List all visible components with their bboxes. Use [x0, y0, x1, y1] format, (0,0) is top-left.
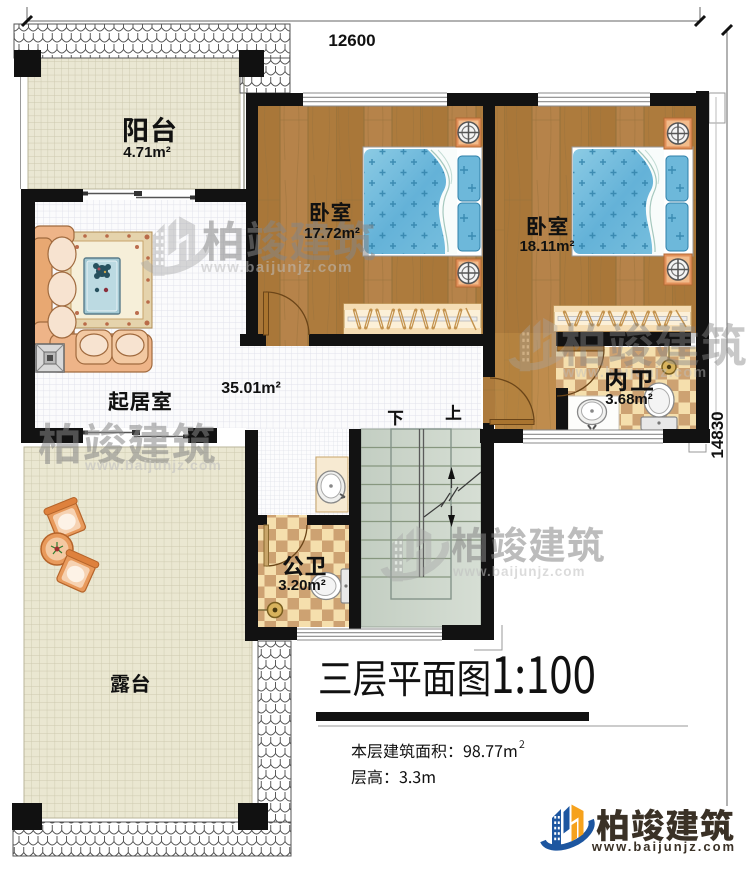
- svg-text:www.baijunjz.com: www.baijunjz.com: [84, 457, 222, 473]
- svg-text:3.20m²: 3.20m²: [278, 577, 326, 594]
- svg-text:17.72m²: 17.72m²: [304, 225, 360, 242]
- svg-text:12600: 12600: [328, 31, 375, 50]
- svg-text:18.11m²: 18.11m²: [519, 238, 574, 255]
- svg-text:4.71m²: 4.71m²: [123, 144, 171, 161]
- svg-text:35.01m²: 35.01m²: [221, 380, 281, 397]
- svg-text:www.baijunjz.com: www.baijunjz.com: [452, 564, 586, 579]
- svg-text:14830: 14830: [708, 411, 727, 458]
- svg-text:www.baijunjz.com: www.baijunjz.com: [591, 839, 736, 854]
- svg-text:3.68m²: 3.68m²: [605, 391, 653, 408]
- svg-text:www.baijunjz.com: www.baijunjz.com: [200, 259, 353, 276]
